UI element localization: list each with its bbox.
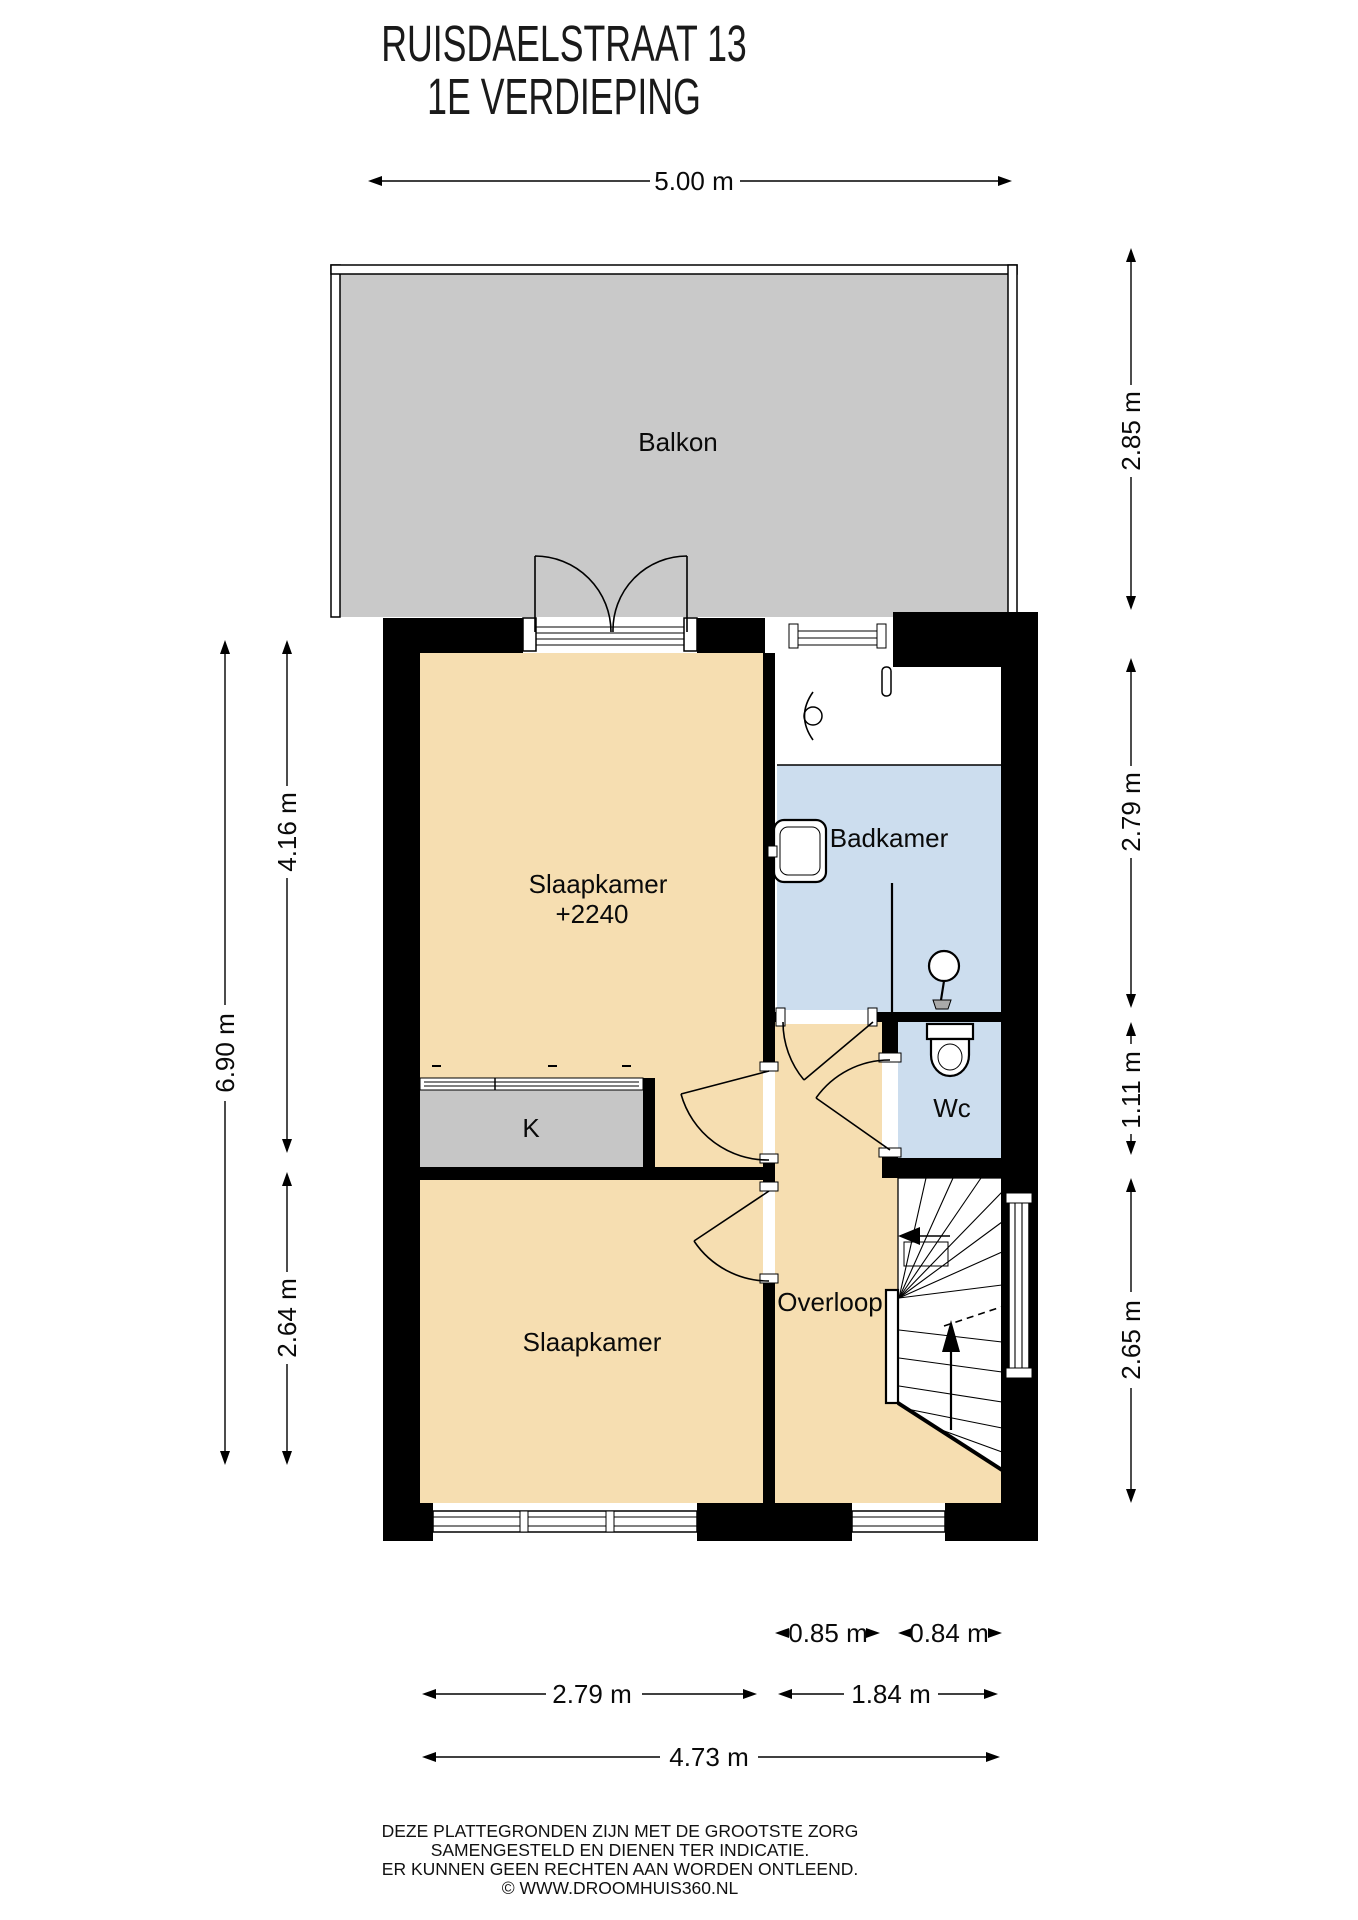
wc-door-opening	[879, 1053, 901, 1157]
footer-line3: ER KUNNEN GEEN RECHTEN AAN WORDEN ONTLEE…	[382, 1859, 858, 1879]
dim-left-upper: 4.16 m	[272, 792, 302, 872]
dim-left-lower: 2.64 m	[272, 1278, 302, 1358]
dim-bottom-hal: 1.84 m	[851, 1679, 931, 1709]
floorplan-page: Balkon Slaapkamer +2240 Badkamer Wc K Ov…	[0, 0, 1358, 1920]
bedroom1-floor-notch	[655, 1078, 763, 1167]
dim-bottom-total: 4.73 m	[669, 1742, 749, 1772]
footer-line2: SAMENGESTELD EN DIENEN TER INDICATIE.	[431, 1840, 810, 1860]
bedroom2-window	[433, 1511, 697, 1532]
shower-drain-icon	[804, 707, 822, 725]
dim-right-wc: 1.11 m	[1116, 1051, 1146, 1129]
title-block: RUISDAELSTRAAT 13 1E VERDIEPING	[381, 16, 747, 126]
room-label-slaapkamer2: Slaapkamer	[523, 1327, 662, 1357]
footer-disclaimer: DEZE PLATTEGRONDEN ZIJN MET DE GROOTSTE …	[382, 1821, 859, 1898]
toilet-icon	[927, 1024, 973, 1076]
balcony-rail-left	[331, 265, 340, 617]
stair-handrail	[886, 1290, 898, 1403]
room-label-slaapkamer1: Slaapkamer	[529, 869, 668, 899]
page-title-line1: RUISDAELSTRAAT 13	[381, 16, 747, 73]
dim-top-width: 5.00 m	[654, 166, 734, 196]
balcony-rail-top	[331, 265, 1017, 274]
sink-icon	[768, 820, 826, 882]
overloop-window	[852, 1511, 945, 1532]
room-label-overloop: Overloop	[777, 1287, 883, 1317]
dim-bottom-stairs: 0.84 m	[909, 1618, 989, 1648]
floor-plan: Balkon Slaapkamer +2240 Badkamer Wc K Ov…	[0, 0, 1358, 1920]
badkamer-floor	[777, 765, 1001, 1012]
dim-right-badkamer: 2.79 m	[1116, 772, 1146, 852]
room-label-closet: K	[522, 1113, 540, 1143]
dim-left-total: 6.90 m	[210, 1013, 240, 1093]
room-label-balkon: Balkon	[638, 427, 718, 457]
badkamer-door-opening	[776, 1008, 877, 1026]
room-label-badkamer: Badkamer	[830, 823, 949, 853]
footer-line4: © WWW.DROOMHUIS360.NL	[502, 1878, 739, 1898]
bedroom1-floor	[420, 653, 763, 1078]
balcony-rail-right	[1008, 265, 1017, 617]
page-title-line2: 1E VERDIEPING	[427, 69, 701, 126]
room-label-level: +2240	[555, 899, 628, 929]
bath-faucet-icon	[882, 667, 891, 696]
dim-right-balkon: 2.85 m	[1116, 391, 1146, 471]
stairs-window	[1006, 1193, 1032, 1378]
dim-bottom-slaapkamer: 2.79 m	[552, 1679, 632, 1709]
badkamer-window	[765, 618, 893, 653]
footer-line1: DEZE PLATTEGRONDEN ZIJN MET DE GROOTSTE …	[382, 1821, 859, 1841]
dim-right-stairs: 2.65 m	[1116, 1300, 1146, 1380]
closet-front	[420, 1078, 643, 1090]
room-label-wc: Wc	[933, 1093, 971, 1123]
dim-bottom-overloop: 0.85 m	[788, 1618, 868, 1648]
